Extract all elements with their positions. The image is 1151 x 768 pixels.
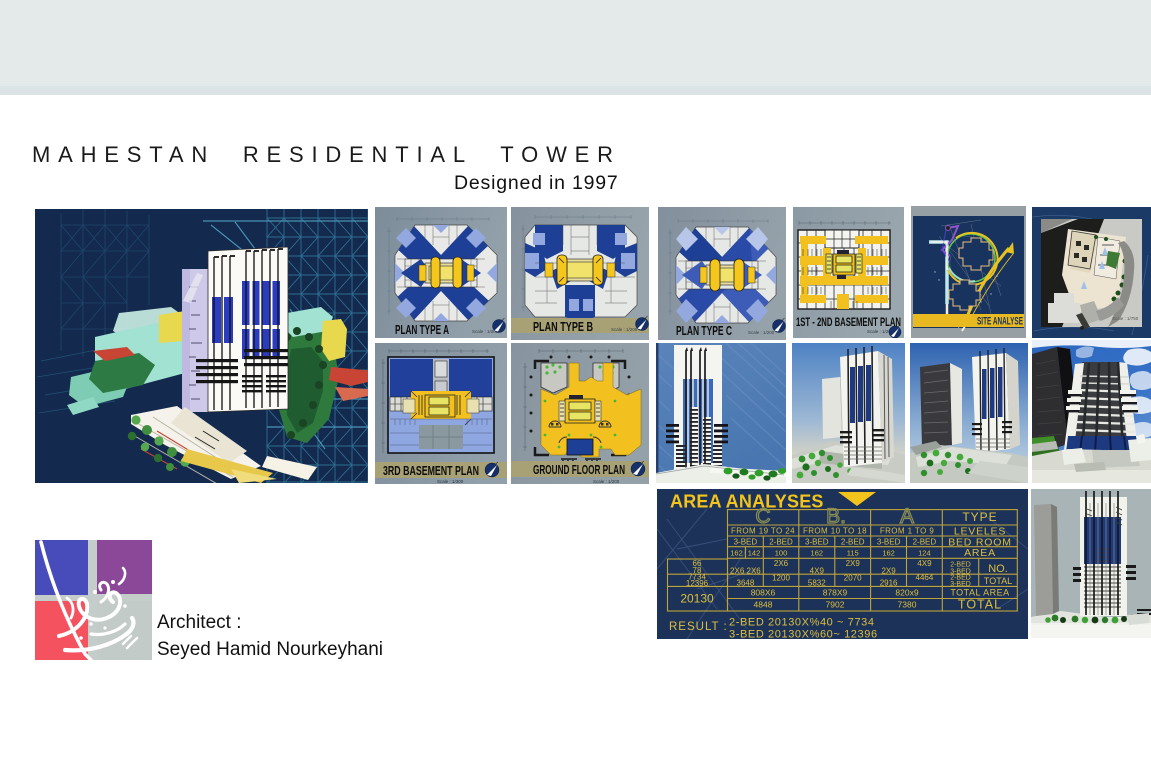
svg-text:4848: 4848: [754, 600, 773, 610]
svg-text:1200: 1200: [772, 574, 790, 583]
svg-text:3-BED: 3-BED: [877, 538, 901, 547]
svg-text:Scale : 1/750: Scale : 1/750: [1112, 316, 1139, 321]
svg-text:TYPE: TYPE: [962, 510, 997, 524]
svg-text:PLAN TYPE A: PLAN TYPE A: [395, 323, 449, 337]
svg-text:FROM 10 TO 18: FROM 10 TO 18: [803, 527, 867, 536]
svg-text:3-BED: 3-BED: [805, 538, 829, 547]
svg-text:B.: B.: [826, 505, 846, 528]
svg-text:2-BED: 2-BED: [950, 562, 971, 569]
svg-text:2916: 2916: [880, 579, 898, 588]
svg-text:12396: 12396: [686, 579, 709, 588]
svg-text:4464: 4464: [916, 573, 934, 582]
svg-text:Scale : 1/300: Scale : 1/300: [437, 479, 464, 484]
svg-text:3-BED 20130X%60~ 12396: 3-BED 20130X%60~ 12396: [729, 629, 878, 640]
svg-text:2X9: 2X9: [881, 567, 896, 576]
svg-text:PLAN TYPE C: PLAN TYPE C: [676, 324, 732, 338]
svg-text:NO.: NO.: [988, 563, 1008, 575]
svg-text:A: A: [900, 505, 914, 528]
svg-text:162: 162: [811, 549, 824, 558]
svg-text:4X9: 4X9: [917, 559, 932, 568]
svg-text:2-BED: 2-BED: [841, 538, 865, 547]
svg-text:2-BED: 2-BED: [769, 538, 793, 547]
svg-text:2X6: 2X6: [774, 559, 789, 568]
svg-text:100: 100: [775, 549, 788, 558]
svg-text:Scale : 1/200: Scale : 1/200: [748, 330, 775, 335]
svg-text:4X9: 4X9: [810, 567, 825, 576]
svg-text:2070: 2070: [844, 574, 862, 583]
svg-text:AREA: AREA: [964, 547, 996, 559]
svg-text:20130: 20130: [680, 592, 714, 606]
svg-text:124: 124: [918, 549, 931, 558]
svg-text:3RD BASEMENT PLAN: 3RD BASEMENT PLAN: [383, 463, 479, 478]
svg-text:162: 162: [882, 549, 895, 558]
svg-text:808X6: 808X6: [751, 588, 776, 598]
svg-text:Scale : 1/200: Scale : 1/200: [611, 327, 638, 332]
svg-text:878X9: 878X9: [823, 588, 848, 598]
svg-text:FROM 1 TO 9: FROM 1 TO 9: [880, 527, 934, 536]
svg-text:5832: 5832: [808, 579, 826, 588]
svg-text:162: 162: [730, 549, 743, 558]
svg-text:115: 115: [847, 549, 859, 558]
svg-text:Scale : 1/200: Scale : 1/200: [593, 479, 620, 484]
svg-text:AREA ANALYSES: AREA ANALYSES: [670, 492, 824, 512]
svg-text:7380: 7380: [898, 600, 917, 610]
svg-text:TOTAL AREA: TOTAL AREA: [950, 588, 1009, 598]
svg-text:2X9: 2X9: [846, 559, 861, 568]
svg-text:SITE ANALYSE: SITE ANALYSE: [977, 316, 1023, 328]
svg-text:RESULT :: RESULT :: [669, 621, 728, 633]
svg-text:FROM 19 TO 24: FROM 19 TO 24: [731, 527, 795, 536]
svg-text:2-BED: 2-BED: [913, 538, 937, 547]
svg-text:2X6 2X6: 2X6 2X6: [730, 567, 761, 576]
svg-text:3-BED: 3-BED: [734, 538, 758, 547]
svg-text:C: C: [755, 505, 770, 528]
svg-text:TOTAL: TOTAL: [958, 598, 1002, 612]
svg-text:3648: 3648: [737, 579, 755, 588]
svg-text:1ST - 2ND BASEMENT PLAN: 1ST - 2ND BASEMENT PLAN: [796, 315, 901, 329]
svg-text:2-BED 20130X%40 ~ 7734: 2-BED 20130X%40 ~ 7734: [729, 617, 875, 629]
svg-text:7902: 7902: [826, 600, 845, 610]
svg-text:820x9: 820x9: [895, 588, 918, 598]
svg-text:TOTAL: TOTAL: [984, 576, 1012, 586]
svg-text:GROUND FLOOR PLAN: GROUND FLOOR PLAN: [533, 462, 625, 477]
svg-text:PLAN TYPE B: PLAN TYPE B: [533, 320, 593, 334]
svg-text:142: 142: [748, 549, 761, 558]
